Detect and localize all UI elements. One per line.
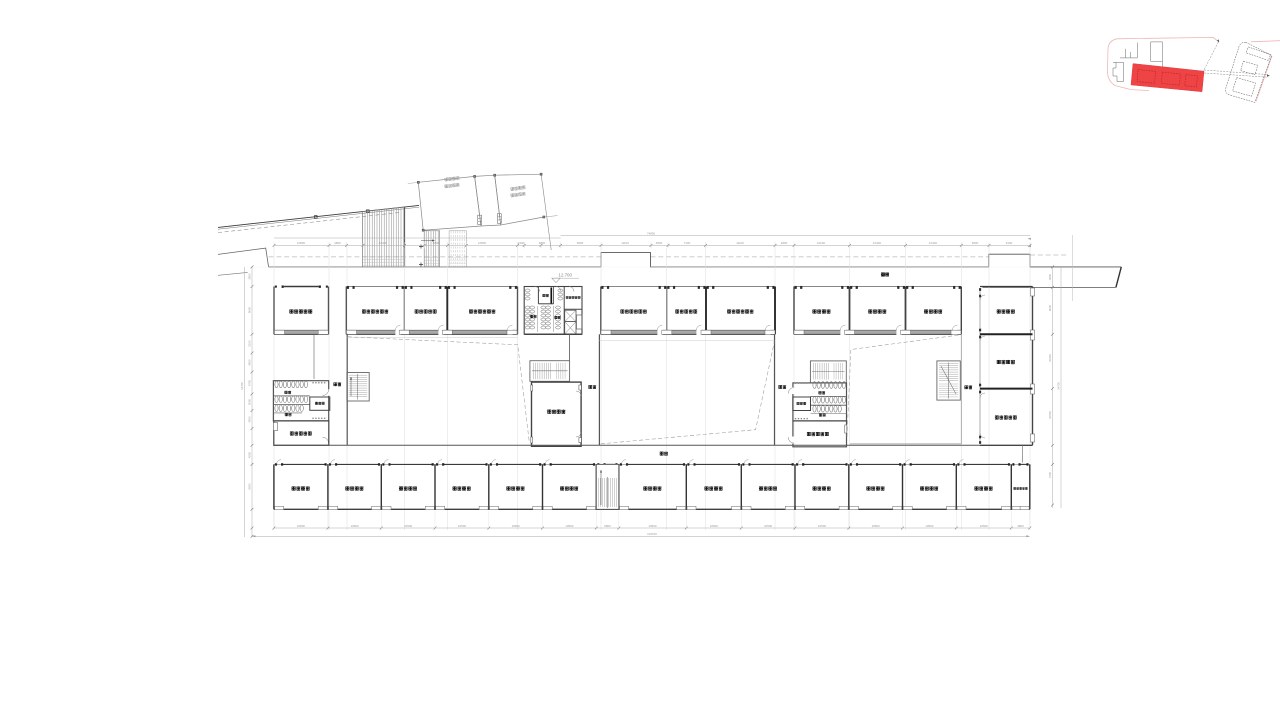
svg-text:10400: 10400 [379, 241, 387, 245]
svg-text:4800: 4800 [972, 241, 979, 245]
svg-text:10500: 10500 [1048, 411, 1052, 419]
svg-text:10500: 10500 [925, 524, 933, 528]
svg-text:4200: 4200 [247, 451, 251, 458]
svg-text:10500: 10500 [351, 524, 359, 528]
svg-text:10200: 10200 [1048, 354, 1052, 362]
svg-text:4800: 4800 [1048, 273, 1052, 280]
svg-text:6900: 6900 [577, 241, 584, 245]
svg-text:3800: 3800 [247, 273, 251, 280]
svg-text:2400: 2400 [518, 241, 525, 245]
svg-text:4500: 4500 [247, 416, 251, 423]
svg-text:4800: 4800 [433, 241, 440, 245]
svg-text:10500: 10500 [565, 524, 573, 528]
svg-text:12.700: 12.700 [559, 273, 573, 278]
svg-text:9000: 9000 [247, 306, 251, 313]
svg-text:10800: 10800 [297, 241, 305, 245]
svg-text:10500: 10500 [710, 524, 718, 528]
svg-text:9000: 9000 [247, 483, 251, 490]
svg-text:10500: 10500 [818, 524, 826, 528]
svg-text:4800: 4800 [539, 241, 546, 245]
svg-text:10500: 10500 [980, 524, 988, 528]
svg-text:6800: 6800 [604, 524, 611, 528]
svg-text:4800: 4800 [781, 241, 788, 245]
svg-text:10400: 10400 [929, 241, 937, 245]
svg-text:11100: 11100 [736, 241, 744, 245]
svg-text:7200: 7200 [1048, 471, 1052, 478]
svg-text:14700: 14700 [240, 382, 244, 390]
svg-text:14700: 14700 [1056, 382, 1060, 390]
svg-text:9100: 9100 [1006, 241, 1013, 245]
svg-text:3800: 3800 [1017, 524, 1024, 528]
svg-text:10500: 10500 [764, 524, 772, 528]
svg-text:7100: 7100 [684, 241, 691, 245]
svg-text:104700: 104700 [647, 532, 657, 536]
svg-text:10800: 10800 [297, 524, 305, 528]
svg-text:74890: 74890 [647, 231, 655, 235]
svg-text:11100: 11100 [621, 241, 629, 245]
svg-text:10500: 10500 [648, 524, 656, 528]
svg-text:10500: 10500 [872, 524, 880, 528]
svg-text:4700: 4700 [247, 379, 251, 386]
svg-text:10500: 10500 [458, 524, 466, 528]
svg-text:4500: 4500 [247, 359, 251, 366]
svg-text:9000: 9000 [1048, 304, 1052, 311]
svg-text:10500: 10500 [512, 524, 520, 528]
svg-text:4800: 4800 [334, 241, 341, 245]
svg-text:10500: 10500 [478, 241, 486, 245]
svg-text:4800: 4800 [656, 241, 663, 245]
svg-text:5100: 5100 [247, 340, 251, 347]
svg-text:10500: 10500 [404, 524, 412, 528]
svg-text:10400: 10400 [873, 241, 881, 245]
svg-text:3000: 3000 [247, 398, 251, 405]
svg-text:10100: 10100 [817, 241, 825, 245]
